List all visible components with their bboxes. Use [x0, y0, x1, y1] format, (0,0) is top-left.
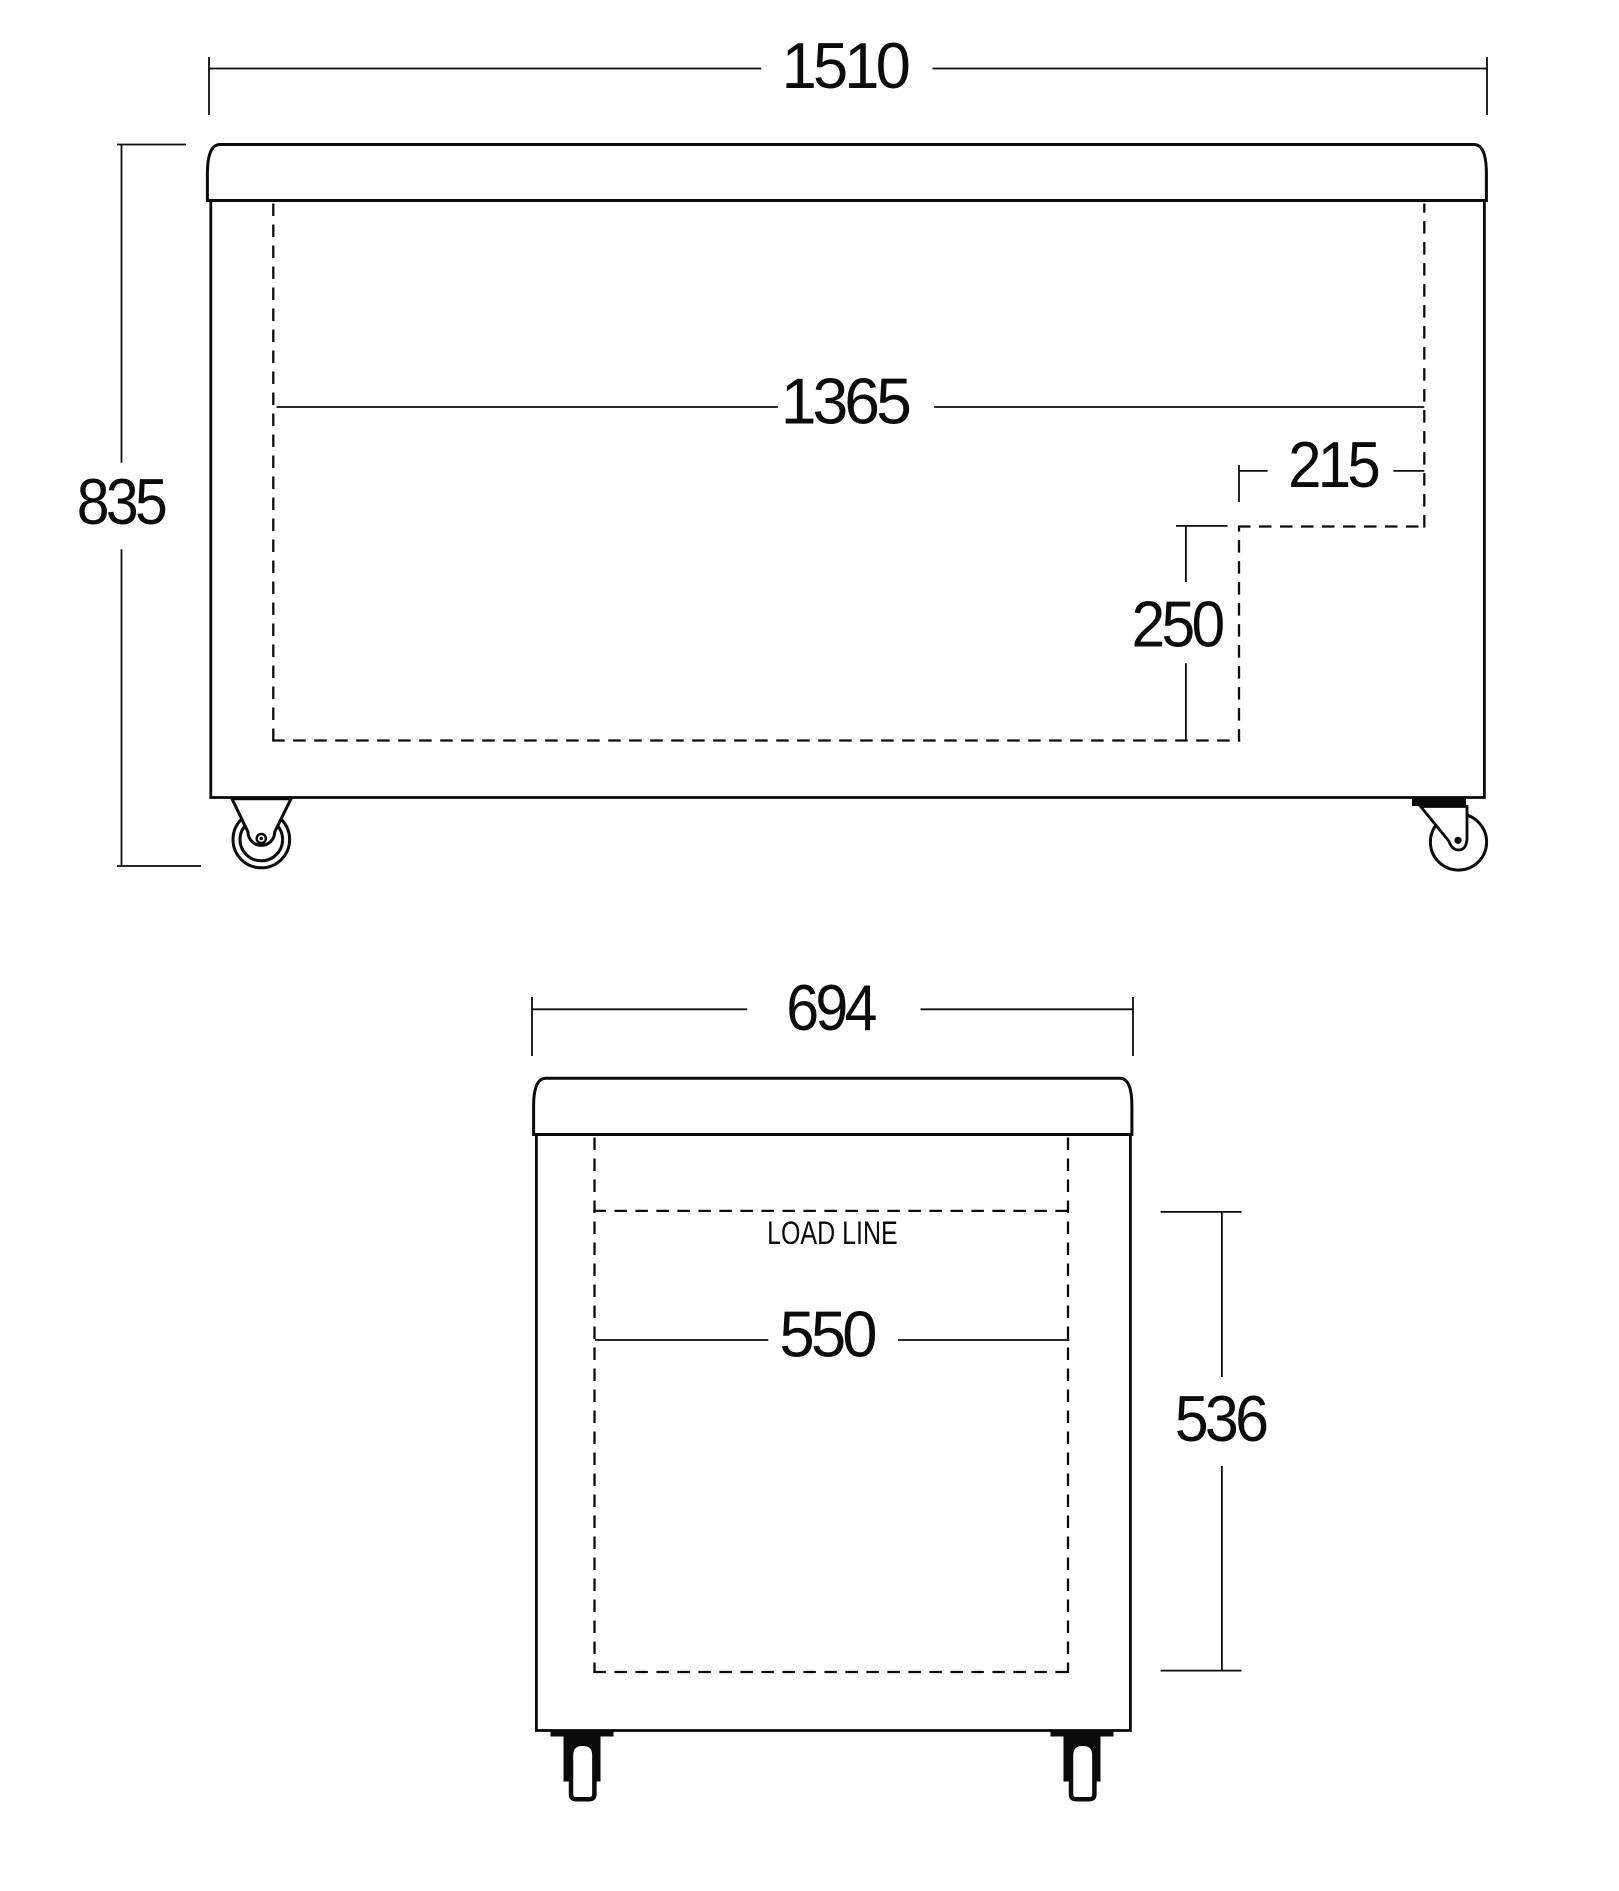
- svg-text:550: 550: [779, 1298, 875, 1371]
- svg-text:LOAD LINE: LOAD LINE: [767, 1216, 898, 1252]
- svg-text:694: 694: [786, 972, 876, 1044]
- svg-text:250: 250: [1132, 589, 1224, 661]
- svg-text:215: 215: [1288, 429, 1379, 502]
- svg-text:536: 536: [1175, 1383, 1267, 1455]
- svg-text:1365: 1365: [781, 364, 910, 437]
- svg-text:835: 835: [77, 466, 166, 538]
- svg-text:1510: 1510: [782, 29, 909, 102]
